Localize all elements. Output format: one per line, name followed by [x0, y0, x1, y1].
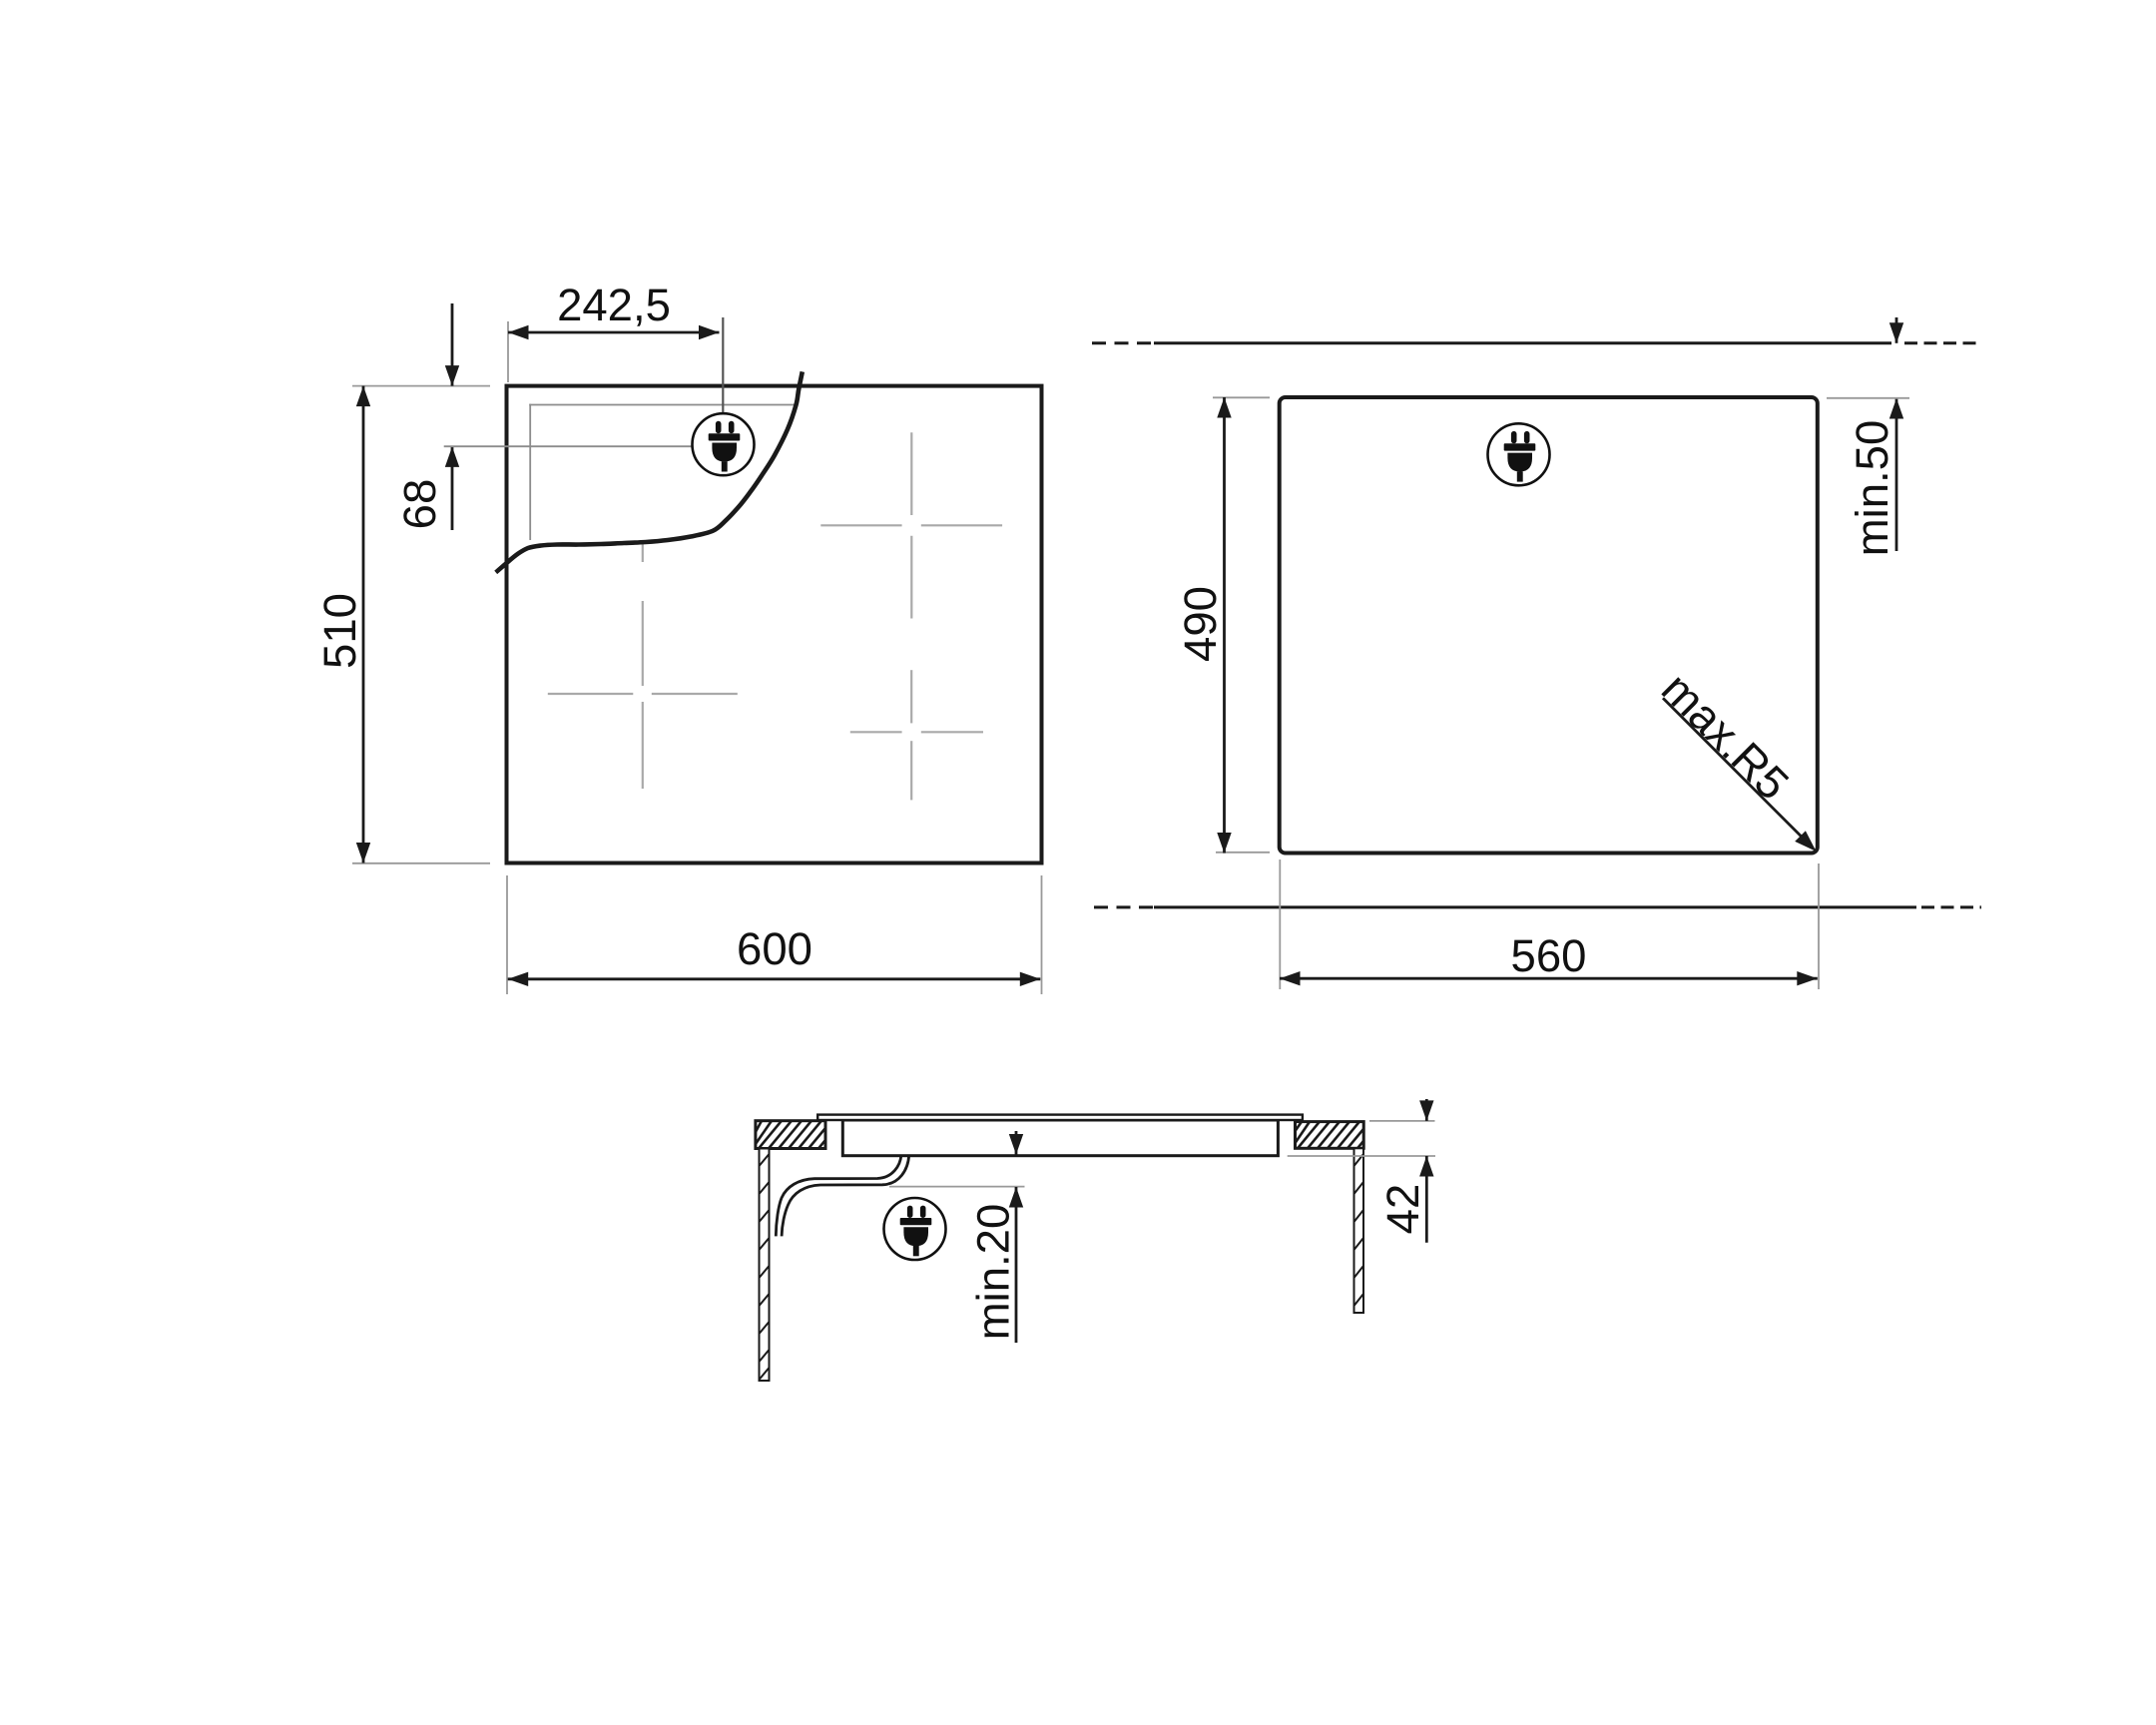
- svg-text:68: 68: [394, 479, 445, 530]
- svg-text:min.50: min.50: [1847, 420, 1897, 557]
- svg-text:560: 560: [1511, 930, 1587, 981]
- svg-text:42: 42: [1377, 1184, 1428, 1235]
- svg-text:510: 510: [314, 593, 365, 669]
- svg-text:600: 600: [737, 923, 812, 974]
- svg-text:min.20: min.20: [968, 1204, 1019, 1341]
- svg-text:490: 490: [1175, 586, 1226, 662]
- svg-text:242,5: 242,5: [557, 280, 671, 330]
